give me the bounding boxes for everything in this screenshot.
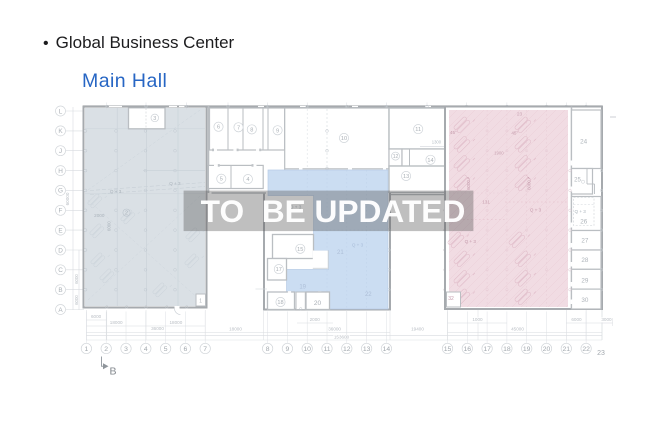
svg-text:Q + 3: Q + 3 xyxy=(465,239,477,244)
svg-text:3: 3 xyxy=(153,116,156,122)
svg-text:18000: 18000 xyxy=(170,320,183,325)
svg-text:19400: 19400 xyxy=(411,327,424,332)
svg-text:23: 23 xyxy=(597,350,605,357)
svg-text:2: 2 xyxy=(125,211,128,217)
svg-text:K: K xyxy=(58,128,63,135)
svg-text:24: 24 xyxy=(580,138,588,145)
svg-text:18: 18 xyxy=(277,300,283,306)
svg-text:16: 16 xyxy=(464,346,472,353)
svg-text:Q + 3: Q + 3 xyxy=(110,189,122,194)
svg-text:15: 15 xyxy=(444,346,452,353)
svg-text:H: H xyxy=(58,168,63,175)
svg-text:21: 21 xyxy=(337,250,344,256)
svg-text:22: 22 xyxy=(582,346,590,353)
svg-text:45°: 45° xyxy=(450,130,457,135)
svg-text:6000: 6000 xyxy=(74,295,79,305)
svg-text:1000: 1000 xyxy=(472,317,483,322)
svg-text:6: 6 xyxy=(184,346,188,353)
svg-text:22: 22 xyxy=(365,292,372,298)
svg-text:12: 12 xyxy=(393,154,399,160)
svg-text:13: 13 xyxy=(363,346,371,353)
svg-text:29: 29 xyxy=(581,278,589,285)
svg-text:1900: 1900 xyxy=(494,151,504,156)
svg-text:D: D xyxy=(58,247,63,254)
svg-text:J: J xyxy=(59,148,62,155)
svg-text:8: 8 xyxy=(266,346,270,353)
svg-text:45°: 45° xyxy=(511,131,518,136)
svg-text:11: 11 xyxy=(323,346,330,353)
svg-text:30: 30 xyxy=(581,297,589,304)
svg-text:19: 19 xyxy=(523,346,531,353)
svg-text:12: 12 xyxy=(343,346,351,353)
svg-text:14: 14 xyxy=(427,158,433,164)
svg-text:B: B xyxy=(110,366,117,378)
svg-text:20: 20 xyxy=(314,300,322,307)
svg-text:3000: 3000 xyxy=(601,317,612,322)
svg-text:2000: 2000 xyxy=(94,213,105,218)
svg-text:7: 7 xyxy=(203,346,207,353)
svg-text:B: B xyxy=(58,287,62,294)
svg-text:17: 17 xyxy=(276,267,282,273)
svg-text:9: 9 xyxy=(286,346,290,353)
svg-text:3: 3 xyxy=(124,346,128,353)
svg-text:23: 23 xyxy=(517,112,523,118)
svg-text:2000: 2000 xyxy=(310,317,321,322)
svg-text:Q + 3: Q + 3 xyxy=(575,209,587,214)
svg-text:1: 1 xyxy=(85,346,89,353)
svg-text:G: G xyxy=(58,188,63,195)
svg-text:5: 5 xyxy=(220,177,223,183)
svg-text:25: 25 xyxy=(574,178,581,184)
svg-text:13: 13 xyxy=(403,174,409,180)
svg-text:A: A xyxy=(58,307,63,314)
svg-text:18000: 18000 xyxy=(110,320,123,325)
svg-text:27: 27 xyxy=(581,237,589,244)
svg-text:14: 14 xyxy=(383,346,391,353)
svg-text:20: 20 xyxy=(543,346,551,353)
svg-text:TO BE UPDATED: TO BE UPDATED xyxy=(201,193,466,229)
svg-text:2: 2 xyxy=(104,346,108,353)
svg-text:L: L xyxy=(59,108,63,115)
svg-text:131: 131 xyxy=(482,200,490,205)
svg-text:Q + 3: Q + 3 xyxy=(530,208,542,213)
svg-text:6000↗: 6000↗ xyxy=(466,176,471,189)
svg-text:4: 4 xyxy=(144,346,148,353)
svg-text:60000: 60000 xyxy=(65,192,70,205)
svg-text:10: 10 xyxy=(341,136,347,142)
svg-text:6000: 6000 xyxy=(107,221,112,231)
svg-text:6: 6 xyxy=(217,125,220,131)
svg-text:19: 19 xyxy=(299,285,306,291)
svg-text:36000: 36000 xyxy=(328,327,341,332)
svg-text:17: 17 xyxy=(483,346,491,353)
svg-text:26: 26 xyxy=(580,219,588,226)
svg-text:21: 21 xyxy=(563,346,571,353)
svg-text:E: E xyxy=(58,227,62,234)
svg-text:6000↗: 6000↗ xyxy=(527,176,532,189)
svg-text:6000: 6000 xyxy=(74,274,79,284)
svg-text:153600: 153600 xyxy=(334,334,350,339)
svg-text:1300: 1300 xyxy=(432,140,442,145)
svg-text:11: 11 xyxy=(415,127,421,133)
svg-text:18: 18 xyxy=(503,346,511,353)
svg-text:28: 28 xyxy=(581,257,589,264)
svg-text:1: 1 xyxy=(199,298,202,304)
svg-text:15: 15 xyxy=(297,247,303,253)
svg-text:32: 32 xyxy=(448,296,454,302)
svg-text:F: F xyxy=(59,208,63,215)
svg-text:45000: 45000 xyxy=(511,327,524,332)
svg-text:Q + 3: Q + 3 xyxy=(352,243,364,248)
svg-text:36000: 36000 xyxy=(151,326,164,331)
svg-text:4: 4 xyxy=(246,177,249,183)
svg-text:8: 8 xyxy=(250,127,253,133)
svg-text:10: 10 xyxy=(303,346,311,353)
svg-text:6000: 6000 xyxy=(571,317,582,322)
svg-text:C: C xyxy=(58,267,63,274)
svg-text:18000: 18000 xyxy=(229,327,242,332)
svg-text:7: 7 xyxy=(237,125,240,131)
svg-text:5: 5 xyxy=(164,346,168,353)
svg-text:6000: 6000 xyxy=(91,314,102,319)
svg-text:Q + 3: Q + 3 xyxy=(169,181,181,186)
svg-text:9: 9 xyxy=(276,128,279,134)
